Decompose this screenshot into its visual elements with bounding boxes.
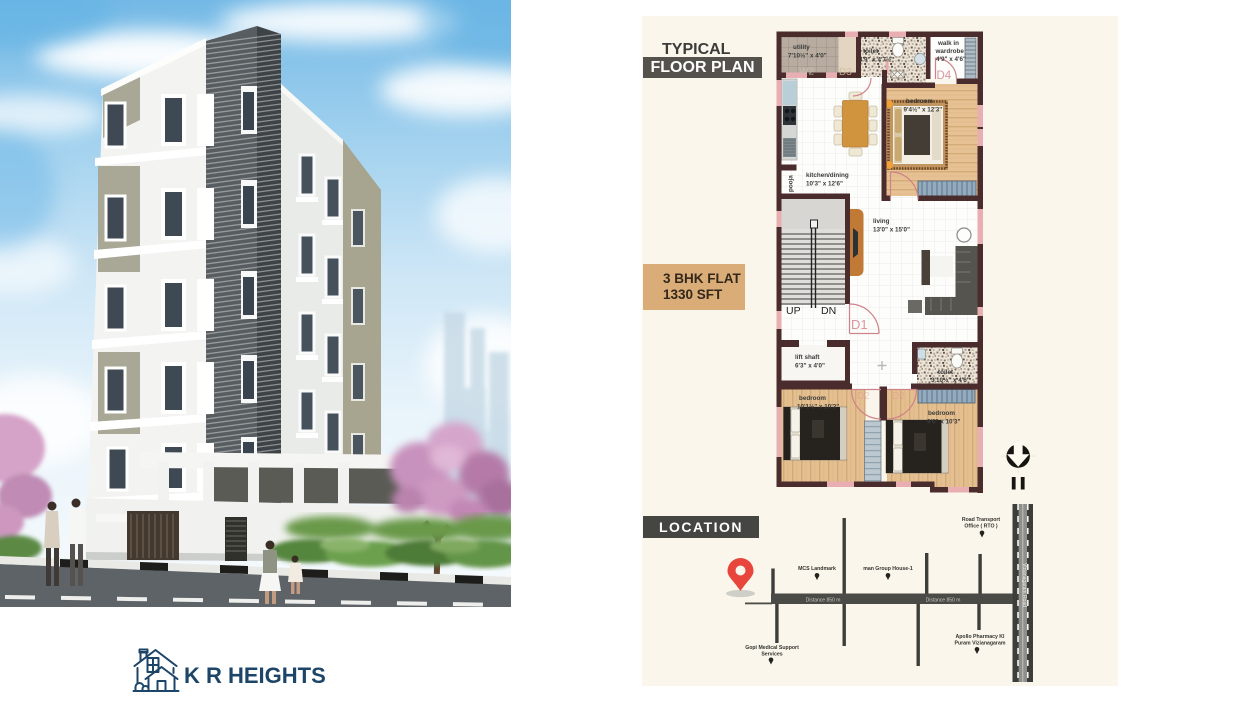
svg-text:DN: DN xyxy=(821,305,836,317)
svg-text:toilet: toilet xyxy=(938,369,954,376)
svg-text:Apollo Pharmacy KI: Apollo Pharmacy KI xyxy=(955,634,1005,640)
svg-text:3'10½" x 4'6": 3'10½" x 4'6" xyxy=(931,376,970,384)
svg-text:Services: Services xyxy=(761,652,782,658)
svg-text:D4: D4 xyxy=(937,70,952,82)
svg-text:Distance 850 m: Distance 850 m xyxy=(926,598,961,604)
svg-text:D3: D3 xyxy=(839,67,852,78)
svg-text:W2: W2 xyxy=(799,67,814,78)
svg-text:4'9" x 4'7½": 4'9" x 4'7½" xyxy=(859,56,894,64)
svg-text:bedroom: bedroom xyxy=(928,410,955,417)
svg-text:Vizianagaram Road: Vizianagaram Road xyxy=(1021,563,1027,607)
svg-text:toilet: toilet xyxy=(863,48,879,55)
svg-text:9'4½" x 12'3": 9'4½" x 12'3" xyxy=(904,106,943,114)
svg-text:walk in: walk in xyxy=(937,40,959,47)
svg-text:Gopi Medical Support: Gopi Medical Support xyxy=(745,645,799,651)
svg-text:6'3" x 4'0": 6'3" x 4'0" xyxy=(795,363,825,370)
svg-text:man Group House-1: man Group House-1 xyxy=(863,566,913,572)
svg-text:4'9" x 4'6": 4'9" x 4'6" xyxy=(936,56,966,63)
svg-text:10'3" x 12'6": 10'3" x 12'6" xyxy=(806,181,843,188)
svg-text:UP: UP xyxy=(786,305,801,317)
svg-text:D2: D2 xyxy=(892,391,905,402)
svg-text:MCS Landmark: MCS Landmark xyxy=(798,566,836,572)
svg-text:Distance 850 m: Distance 850 m xyxy=(806,598,841,604)
svg-text:utility: utility xyxy=(793,44,810,51)
svg-text:9'6" x 10'3": 9'6" x 10'3" xyxy=(927,419,960,426)
svg-text:7'10½" x 4'0": 7'10½" x 4'0" xyxy=(788,52,827,60)
svg-text:bedroom: bedroom xyxy=(906,98,933,105)
svg-text:Office ( RTO ): Office ( RTO ) xyxy=(964,524,998,530)
svg-text:living: living xyxy=(873,218,890,225)
svg-text:bedroom: bedroom xyxy=(799,395,826,402)
svg-text:D2: D2 xyxy=(857,391,870,402)
svg-text:Puram Vizianagaram: Puram Vizianagaram xyxy=(955,641,1006,647)
svg-text:pooja: pooja xyxy=(788,175,795,192)
svg-text:D1: D1 xyxy=(851,317,868,332)
svg-text:kitchen/dining: kitchen/dining xyxy=(806,172,849,179)
svg-text:13'0" x 15'0": 13'0" x 15'0" xyxy=(873,227,910,234)
svg-text:Road Transport: Road Transport xyxy=(962,517,1001,523)
svg-text:10'1½" x 10'3": 10'1½" x 10'3" xyxy=(797,403,839,411)
svg-text:lift shaft: lift shaft xyxy=(795,354,820,361)
svg-text:wardrobe: wardrobe xyxy=(935,48,965,55)
